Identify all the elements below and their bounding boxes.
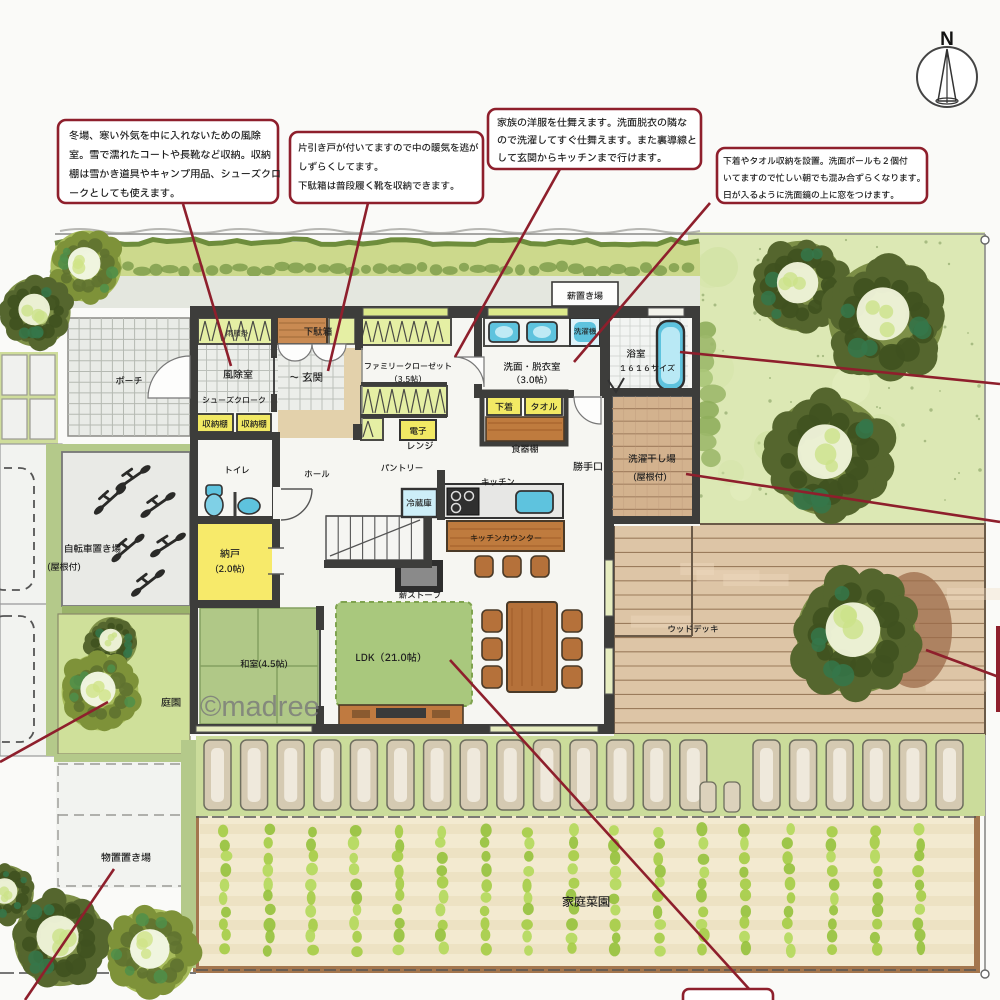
svg-text:N: N: [940, 29, 954, 50]
svg-text:©madree: ©madree: [200, 691, 320, 723]
